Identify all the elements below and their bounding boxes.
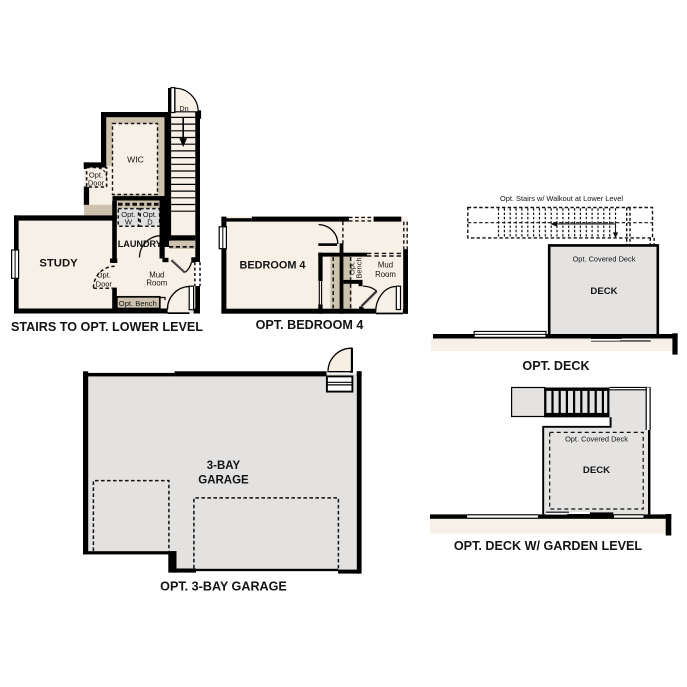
svg-text:Door: Door (96, 279, 113, 288)
svg-text:3-BAY: 3-BAY (207, 460, 241, 472)
svg-text:Opt. Bench: Opt. Bench (119, 299, 157, 308)
svg-text:Mud: Mud (378, 261, 393, 270)
svg-text:STAIRS TO OPT. LOWER LEVEL: STAIRS TO OPT. LOWER LEVEL (11, 320, 203, 334)
svg-text:OPT. BEDROOM 4: OPT. BEDROOM 4 (256, 318, 364, 332)
svg-text:Room: Room (146, 278, 167, 287)
svg-text:DECK: DECK (590, 286, 617, 297)
svg-text:Opt. Covered Deck: Opt. Covered Deck (565, 434, 628, 443)
svg-text:OPT. DECK W/ GARDEN LEVEL: OPT. DECK W/ GARDEN LEVEL (454, 539, 643, 553)
svg-text:STUDY: STUDY (39, 258, 78, 270)
svg-text:LAUNDRY: LAUNDRY (118, 239, 162, 249)
svg-text:GARAGE: GARAGE (198, 475, 249, 487)
svg-text:WIC: WIC (127, 155, 144, 165)
svg-text:Opt. Covered Deck: Opt. Covered Deck (573, 255, 636, 264)
svg-text:Bench: Bench (354, 257, 363, 278)
svg-text:Opt.: Opt. (97, 270, 111, 279)
svg-text:D: D (147, 218, 153, 227)
svg-text:Door: Door (88, 179, 105, 188)
svg-text:BEDROOM 4: BEDROOM 4 (240, 259, 306, 271)
svg-text:Dn: Dn (179, 104, 188, 113)
svg-text:W: W (125, 218, 133, 227)
svg-text:Opt. Stairs w/ Walkout at Lowe: Opt. Stairs w/ Walkout at Lower Level (500, 194, 623, 203)
svg-text:DECK: DECK (583, 465, 610, 476)
svg-text:OPT. DECK: OPT. DECK (522, 359, 589, 373)
svg-text:OPT. 3-BAY GARAGE: OPT. 3-BAY GARAGE (160, 580, 287, 594)
svg-text:Room: Room (375, 270, 396, 279)
